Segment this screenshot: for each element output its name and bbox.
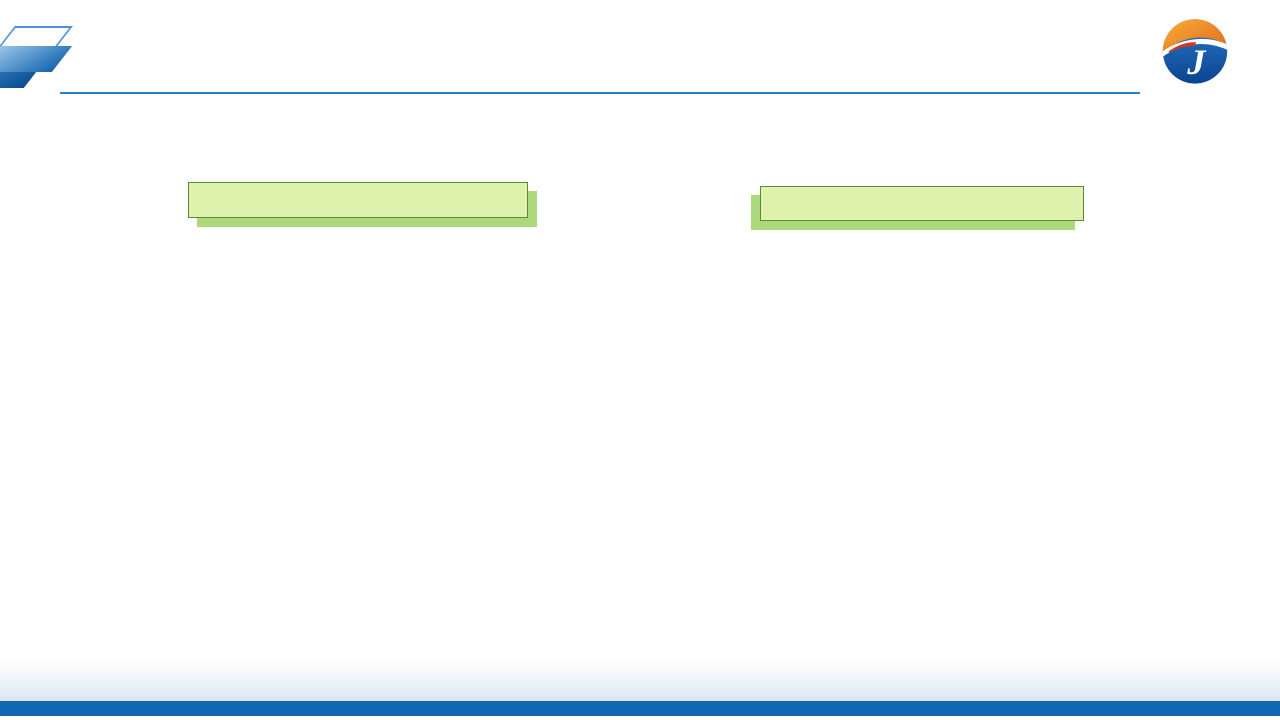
svg-text:J: J	[1186, 42, 1207, 82]
title-ornament-icon	[0, 24, 106, 94]
floor-plan-heatpipe	[646, 158, 1246, 638]
footer-fade	[0, 660, 1280, 702]
slide-canvas: J	[0, 0, 1280, 720]
cad-drawing-heatpipe	[646, 158, 1246, 638]
plan-caption	[760, 186, 1084, 221]
ornament-small-shape	[0, 72, 36, 88]
cad-drawing-conventional	[38, 158, 638, 638]
footer-bar	[0, 701, 1280, 716]
title-underline	[60, 92, 1140, 94]
company-logo-icon: J	[1160, 15, 1230, 85]
floor-plan-conventional	[38, 158, 638, 638]
plan-caption	[188, 182, 528, 218]
ornament-fill-shape	[0, 46, 72, 72]
